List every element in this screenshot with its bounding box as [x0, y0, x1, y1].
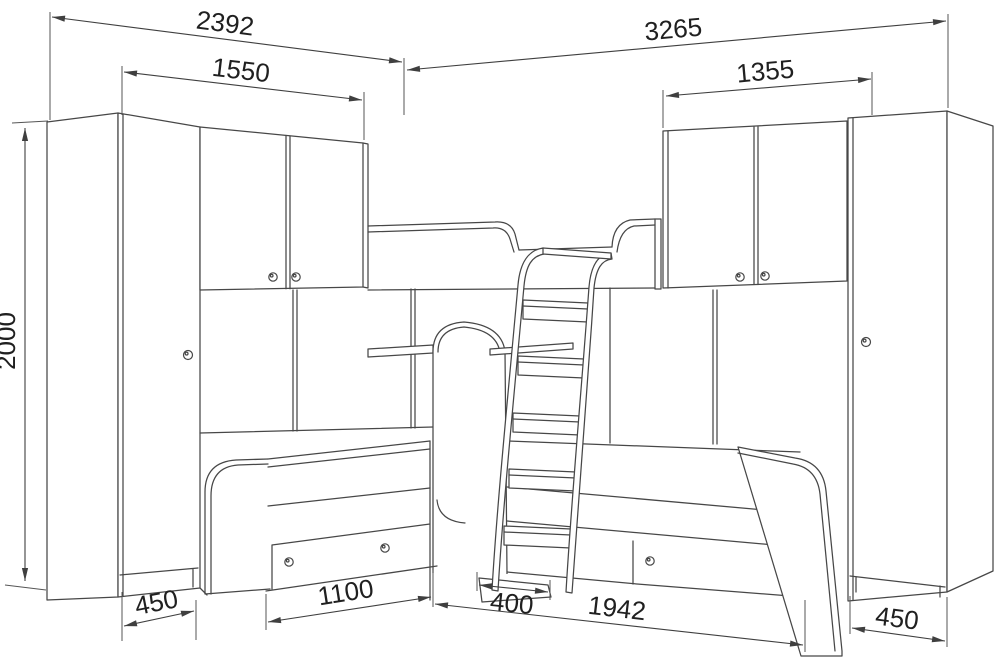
drawing-canvas: 2392 1550 3265 1355 2000 450 1100 400 19…: [0, 0, 997, 659]
bunk-left-headboard: [368, 222, 519, 250]
right-wardrobe-side-panel: [947, 111, 993, 592]
dim-label-right-total: 3265: [643, 11, 703, 46]
dim-label-height: 2000: [0, 312, 21, 370]
left-bed: [200, 441, 437, 600]
left-cabinet-front: [200, 127, 363, 290]
left-wardrobe-side-panel: [47, 113, 118, 600]
furniture-technical-drawing: 2392 1550 3265 1355 2000 450 1100 400 19…: [0, 0, 997, 659]
dim-label-left-bed: 1100: [316, 573, 376, 611]
upper-bunk-bed: [368, 219, 661, 290]
right-wardrobe: [848, 111, 993, 601]
right-bed-corner-panel: [738, 447, 842, 656]
dim-label-right-wardrobe-depth: 450: [874, 600, 921, 635]
left-back-panels: [200, 289, 433, 433]
left-wardrobe: [47, 113, 200, 600]
bunk-end-panel: [655, 219, 661, 289]
wall-shelf: [368, 345, 433, 357]
right-back-panels: [610, 288, 717, 444]
dim-label-ladder: 400: [489, 586, 535, 620]
right-overhead-cabinet: [663, 121, 847, 288]
dim-label-right-upper-cabinet: 1355: [735, 53, 795, 88]
left-overhead-cabinet: [200, 127, 368, 290]
right-wardrobe-door: [848, 111, 947, 601]
ladder-top-bar: [543, 248, 611, 259]
right-cabinet-front: [663, 121, 847, 288]
dim-label-right-bed: 1942: [587, 590, 648, 626]
